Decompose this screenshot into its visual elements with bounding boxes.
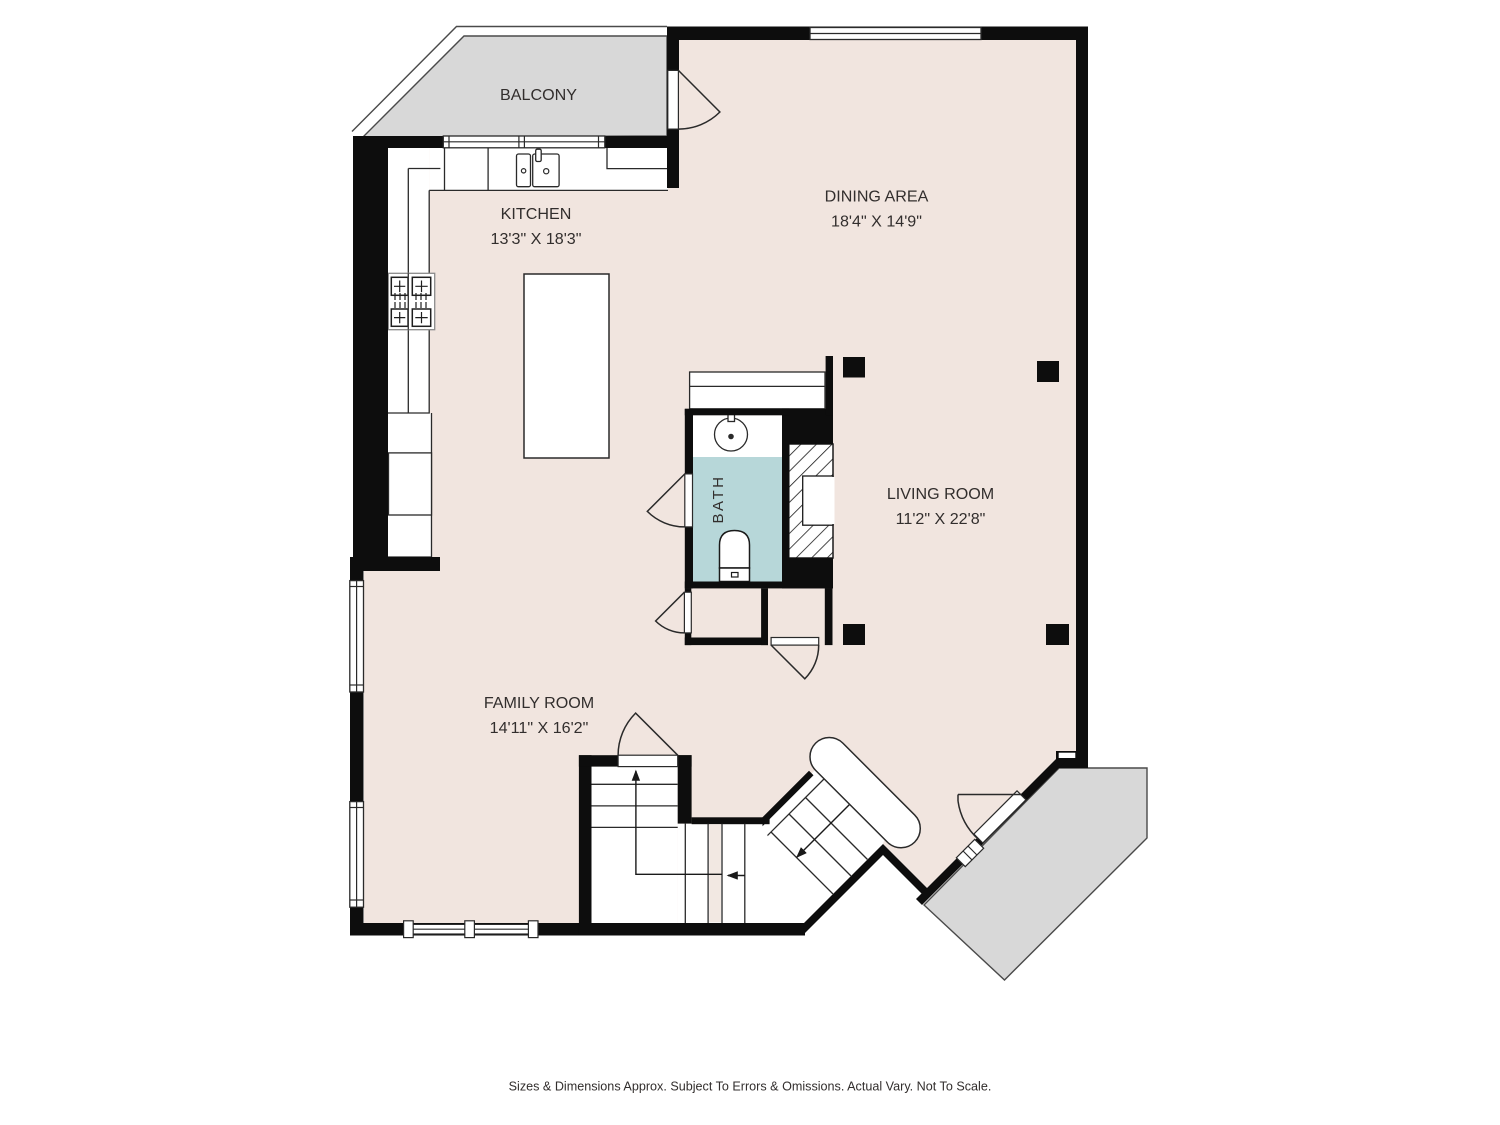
- svg-text:Sizes & Dimensions Approx. Sub: Sizes & Dimensions Approx. Subject To Er…: [509, 1080, 992, 1094]
- svg-text:KITCHEN: KITCHEN: [501, 205, 572, 223]
- svg-text:BALCONY: BALCONY: [500, 86, 577, 104]
- svg-text:LIVING ROOM: LIVING ROOM: [887, 485, 994, 503]
- svg-text:DINING AREA: DINING AREA: [825, 188, 929, 206]
- svg-text:11'2" X 22'8": 11'2" X 22'8": [896, 510, 986, 528]
- svg-text:18'4" X 14'9": 18'4" X 14'9": [831, 213, 922, 231]
- svg-text:BATH: BATH: [710, 475, 727, 524]
- svg-text:14'11" X 16'2": 14'11" X 16'2": [490, 719, 589, 737]
- svg-text:13'3" X 18'3": 13'3" X 18'3": [491, 230, 582, 248]
- svg-text:FAMILY ROOM: FAMILY ROOM: [484, 694, 594, 712]
